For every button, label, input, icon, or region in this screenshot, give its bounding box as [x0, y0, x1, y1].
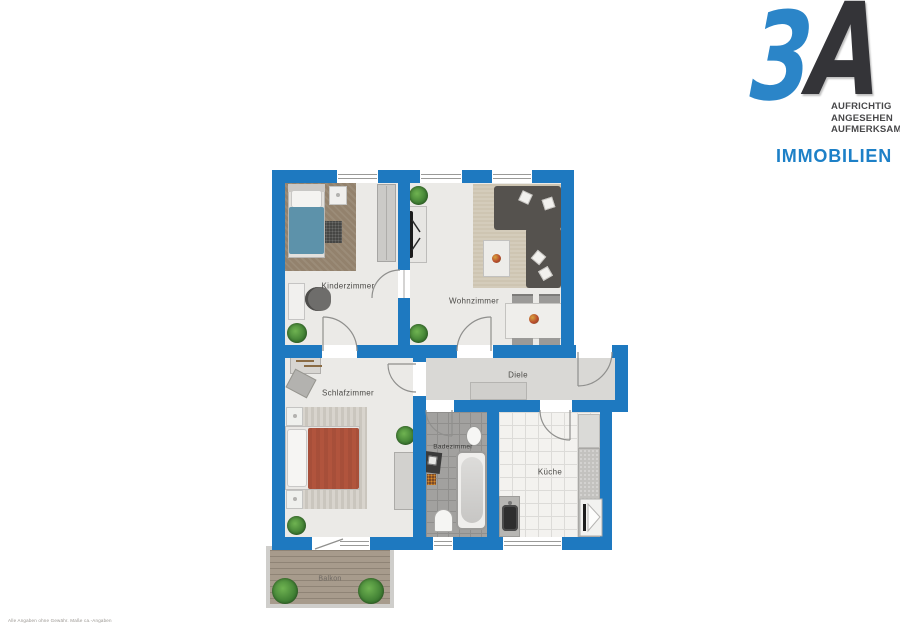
open-wardrobe-rail: [296, 360, 314, 362]
desk-chair: [305, 287, 331, 311]
washing-machine-door: [427, 455, 437, 465]
balcony-door-band: [312, 537, 370, 550]
kids-nightstand-knob: [336, 193, 340, 197]
floorplan-page: Kinderzimmer Wohnzimmer Schlafzimmer Die…: [0, 0, 900, 636]
wall-left: [272, 170, 285, 550]
living-plant-top-icon: [409, 186, 428, 205]
label-badezimmer: Badezimmer: [433, 444, 472, 451]
window-bath: [433, 537, 453, 550]
label-diele: Diele: [508, 371, 528, 380]
door-gap-kids-living: [398, 270, 410, 298]
entrance-door-gap: [576, 345, 612, 358]
label-schlafzimmer: Schlafzimmer: [322, 389, 374, 398]
bedroom-plant-bottom-icon: [287, 516, 306, 535]
window-kids: [337, 170, 378, 183]
logo-brand-immobilien: IMMOBILIEN: [776, 146, 892, 167]
dining-fruit-bowl-icon: [529, 314, 539, 324]
window-kitchen: [503, 537, 562, 550]
bedroom-wardrobe: [394, 452, 414, 510]
double-bed-blanket: [308, 428, 359, 489]
window-living-2: [492, 170, 532, 183]
label-balkon: Balkon: [318, 576, 341, 583]
fruit-bowl-icon: [492, 254, 501, 263]
kitchen-sink: [502, 505, 518, 531]
tagline-line-1: AUFRICHTIG: [831, 101, 900, 113]
kitchen-counter-right: [578, 448, 600, 537]
double-bed-pillows: [287, 429, 307, 487]
balcony-plant-right-icon: [358, 578, 384, 604]
logo-tagline: AUFRICHTIG ANGESEHEN AUFMERKSAM: [831, 101, 900, 136]
door-gap-bath: [426, 400, 454, 412]
bathtub-basin: [461, 457, 483, 523]
kids-plant-icon: [287, 323, 307, 343]
tagline-line-2: ANGESEHEN: [831, 113, 900, 125]
nightstand-top-knob: [293, 414, 297, 418]
door-gap-living-hall: [457, 345, 493, 358]
kitchen-sideboard: [578, 414, 600, 448]
wall-right-lower: [600, 412, 612, 550]
wall-bath-kitchen: [487, 412, 499, 537]
kids-wardrobe-line: [386, 186, 387, 260]
door-gap-kitchen: [540, 400, 572, 412]
wall-kids-living: [398, 183, 410, 345]
logo-numeral-3: 3: [748, 0, 816, 128]
wall-right-step: [600, 400, 628, 412]
desk: [288, 283, 305, 320]
label-wohnzimmer: Wohnzimmer: [449, 297, 499, 306]
laundry-basket: [427, 474, 436, 485]
label-kueche: Küche: [538, 468, 562, 477]
hall-sideboard: [470, 382, 527, 400]
tagline-line-3: AUFMERKSAM: [831, 124, 900, 136]
door-gap-kids-bedroom: [322, 345, 357, 358]
fine-print: Alle Angaben ohne Gewähr. Maße ca.-Angab…: [8, 618, 112, 623]
door-gap-bedroom-hall: [413, 362, 426, 396]
kids-doormat: [325, 221, 342, 243]
toilet: [434, 509, 453, 532]
label-kinderzimmer: Kinderzimmer: [322, 282, 375, 291]
wall-living-right: [561, 170, 574, 358]
nightstand-bottom-knob: [293, 497, 297, 501]
kitchen-faucet-icon: [508, 501, 512, 505]
window-living-1: [420, 170, 462, 183]
living-plant-bottom-icon: [409, 324, 428, 343]
single-bed-blanket: [289, 207, 324, 254]
balcony-plant-left-icon: [272, 578, 298, 604]
single-bed-pillow: [291, 190, 322, 208]
